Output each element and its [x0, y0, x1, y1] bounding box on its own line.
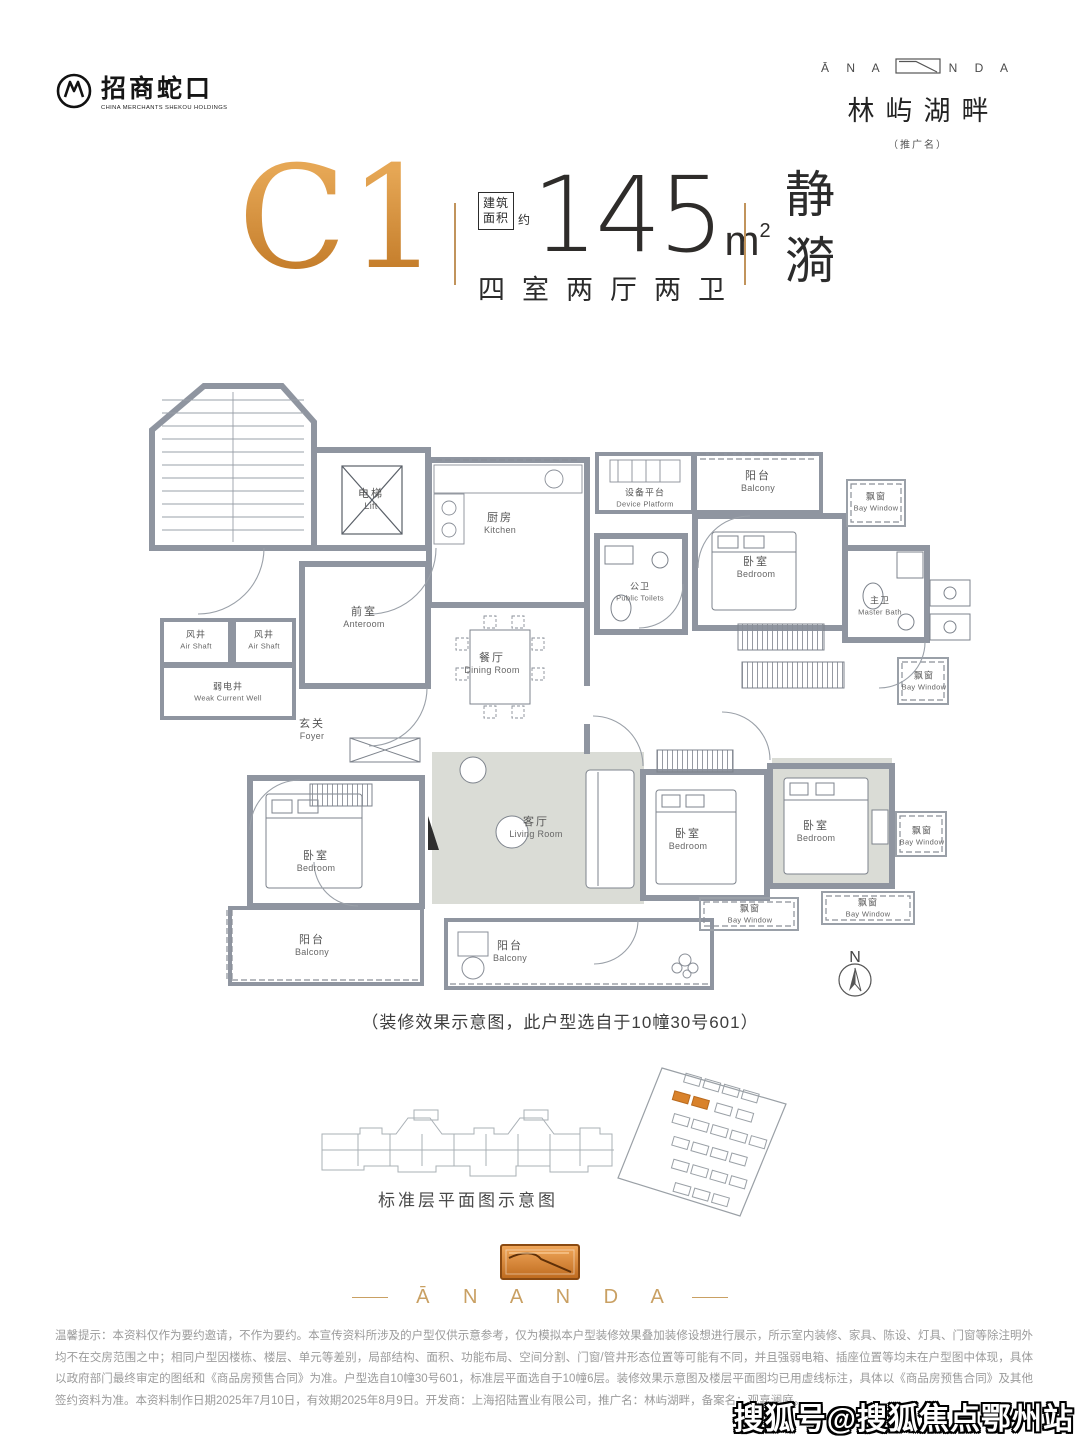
room-label-bedroom-b1: 卧室Bedroom: [669, 827, 708, 853]
poster-page: 招商蛇口 CHINA MERCHANTS SHEKOU HOLDINGS Ā N…: [0, 0, 1080, 1440]
room-label-bedroom-b2: 卧室Bedroom: [797, 819, 836, 845]
room-label-weak-current-well: 弱电井Weak Current Well: [185, 681, 271, 702]
watermark: 搜狐号@搜狐焦点鄂州站: [734, 1394, 1074, 1438]
room-label-air-shaft-2: 风井Air Shaft: [248, 629, 279, 650]
wordmark-line-right: [692, 1297, 728, 1298]
developer-name: 招商蛇口: [101, 77, 227, 102]
room-label-bedroom-tr: 卧室Bedroom: [737, 555, 776, 581]
room-label-master-bath: 主卫Master Bath: [858, 595, 902, 616]
unit-code: C1: [238, 148, 441, 290]
area-label-line1: 建筑: [483, 196, 509, 211]
svg-text:N: N: [849, 949, 861, 966]
area-unit: m2: [725, 220, 771, 262]
room-label-foyer: 玄关Foyer: [299, 717, 325, 743]
north-compass-icon: N: [839, 949, 871, 996]
room-label-kitchen: 厨房Kitchen: [484, 511, 516, 537]
project-logo: Ā N A N D A 林屿湖畔 （推广名）: [808, 58, 1028, 151]
window-glyph-icon: [895, 58, 941, 77]
area-value: 145: [532, 170, 722, 262]
room-label-bay-window-r2: 飘窗Bay Window: [900, 825, 945, 846]
wordmark-text: Ā N A N D A: [402, 1286, 678, 1309]
room-label-public-toilets: 公卫Public Toilets: [616, 581, 664, 602]
floor-plan-caption: （装修效果示意图，此户型选自于10幢30号601）: [140, 1008, 980, 1033]
area-approx: 约: [518, 211, 530, 228]
room-label-lift: 电梯Lift: [358, 487, 384, 513]
project-word-left: Ā N A: [821, 61, 887, 75]
room-label-dining-room: 餐厅Dining Room: [464, 651, 519, 677]
floor-plan: N 电梯Lift 厨房Kitchen 设备平台Device Platform 阳…: [140, 380, 980, 1010]
ananda-logo-icon: [499, 1242, 581, 1287]
unit-tagline: 静漪: [770, 168, 842, 300]
room-label-bedroom-l: 卧室Bedroom: [297, 849, 336, 875]
room-label-balcony-b: 阳台Balcony: [493, 939, 527, 965]
area-label-line2: 面积: [483, 211, 509, 226]
project-name: 林屿湖畔: [808, 89, 1028, 128]
area-spec: 建筑 面积 约 145 m2: [478, 170, 771, 262]
room-label-air-shaft-1: 风井Air Shaft: [180, 629, 211, 650]
area-exponent: 2: [760, 220, 771, 242]
ananda-wordmark: Ā N A N D A: [0, 1286, 1080, 1309]
headline-divider-right: [744, 203, 746, 285]
room-label-bay-window-tr: 飘窗Bay Window: [854, 491, 899, 512]
area-label-box: 建筑 面积: [478, 192, 514, 230]
room-label-device-platform: 设备平台Device Platform: [616, 487, 673, 508]
project-name-note: （推广名）: [808, 136, 1028, 151]
room-label-bay-window-b2: 飘窗Bay Window: [846, 897, 891, 918]
site-plan-thumbnail: [616, 1066, 791, 1223]
room-label-bay-window-b1: 飘窗Bay Window: [728, 903, 773, 924]
cm-mountain-icon: [55, 72, 93, 115]
developer-logo: 招商蛇口 CHINA MERCHANTS SHEKOU HOLDINGS: [55, 72, 227, 115]
room-label-balcony-tr: 阳台Balcony: [741, 469, 775, 495]
headline-divider-left: [454, 203, 456, 285]
project-word-right: N D A: [949, 61, 1015, 75]
layout-description: 四室两厅两卫: [478, 268, 742, 307]
developer-name-en: CHINA MERCHANTS SHEKOU HOLDINGS: [101, 105, 227, 111]
wordmark-line-left: [352, 1297, 388, 1298]
room-label-bay-window-r1: 飘窗Bay Window: [902, 670, 947, 691]
room-label-anteroom: 前室Anteroom: [343, 605, 384, 631]
room-label-balcony-l: 阳台Balcony: [295, 933, 329, 959]
room-label-living-room: 客厅Living Room: [509, 815, 562, 841]
standard-plan-caption: 标准层平面图示意图: [318, 1186, 618, 1211]
standard-floor-plan-thumbnail: [318, 1106, 618, 1189]
